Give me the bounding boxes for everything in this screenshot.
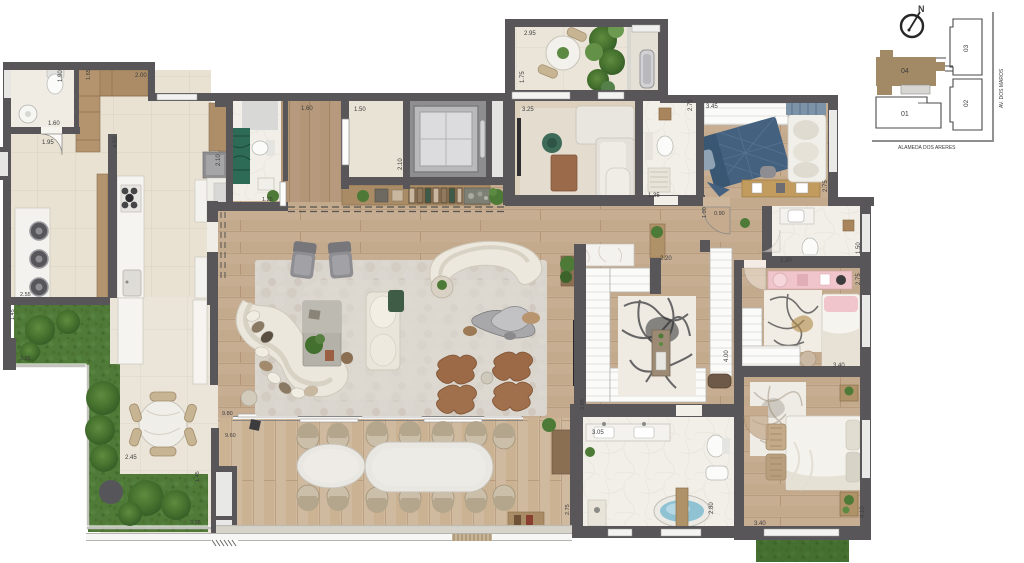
svg-text:02: 02 [963, 99, 970, 107]
svg-text:4.50: 4.50 [113, 136, 119, 148]
svg-text:1.25: 1.25 [262, 197, 273, 203]
svg-text:2.75: 2.75 [565, 504, 571, 515]
svg-text:2.20: 2.20 [660, 256, 672, 262]
svg-text:1.60: 1.60 [301, 106, 313, 112]
svg-text:01: 01 [901, 111, 909, 118]
svg-text:3.40: 3.40 [754, 521, 766, 527]
svg-text:3.05: 3.05 [592, 430, 604, 436]
svg-text:2.45: 2.45 [125, 455, 137, 461]
svg-text:9.60: 9.60 [225, 433, 236, 439]
svg-text:1.95: 1.95 [42, 140, 54, 146]
svg-text:2.55: 2.55 [20, 292, 31, 298]
svg-text:2.75: 2.75 [823, 180, 829, 192]
svg-text:2.55: 2.55 [20, 356, 31, 362]
svg-text:1.50: 1.50 [856, 242, 862, 254]
svg-text:2.70: 2.70 [688, 99, 694, 111]
svg-text:1.90: 1.90 [58, 70, 64, 82]
svg-text:0.90: 0.90 [714, 211, 725, 217]
svg-text:3.40: 3.40 [833, 363, 845, 369]
svg-text:2.95: 2.95 [524, 31, 536, 37]
svg-text:AV. DOS MAROS: AV. DOS MAROS [999, 68, 1005, 108]
svg-text:1.00: 1.00 [702, 207, 708, 218]
svg-text:1.75: 1.75 [520, 71, 526, 83]
svg-text:9.80: 9.80 [222, 411, 233, 417]
svg-text:ALAMEDA DOS ARERES: ALAMEDA DOS ARERES [898, 145, 956, 151]
svg-text:2.80: 2.80 [709, 502, 715, 514]
svg-text:4.10: 4.10 [860, 506, 866, 518]
svg-text:1.45: 1.45 [195, 471, 201, 482]
svg-text:2.10: 2.10 [216, 154, 222, 166]
svg-text:03: 03 [963, 44, 970, 52]
svg-text:1.35: 1.35 [648, 193, 660, 199]
svg-text:3.45: 3.45 [706, 104, 718, 110]
svg-text:4.00: 4.00 [724, 350, 730, 362]
svg-text:1.50: 1.50 [354, 107, 366, 113]
svg-text:1.45: 1.45 [10, 309, 16, 320]
svg-text:1.65: 1.65 [86, 69, 92, 80]
svg-text:04: 04 [901, 68, 909, 75]
svg-text:3.25: 3.25 [522, 107, 534, 113]
svg-text:2.00: 2.00 [135, 73, 147, 79]
svg-text:3.25: 3.25 [190, 520, 201, 526]
svg-text:2.30: 2.30 [780, 258, 792, 264]
svg-text:N: N [918, 4, 925, 14]
svg-text:3.95: 3.95 [580, 399, 586, 410]
svg-text:2.75: 2.75 [856, 273, 862, 285]
svg-text:2.10: 2.10 [398, 158, 404, 170]
svg-text:1.60: 1.60 [48, 121, 60, 127]
